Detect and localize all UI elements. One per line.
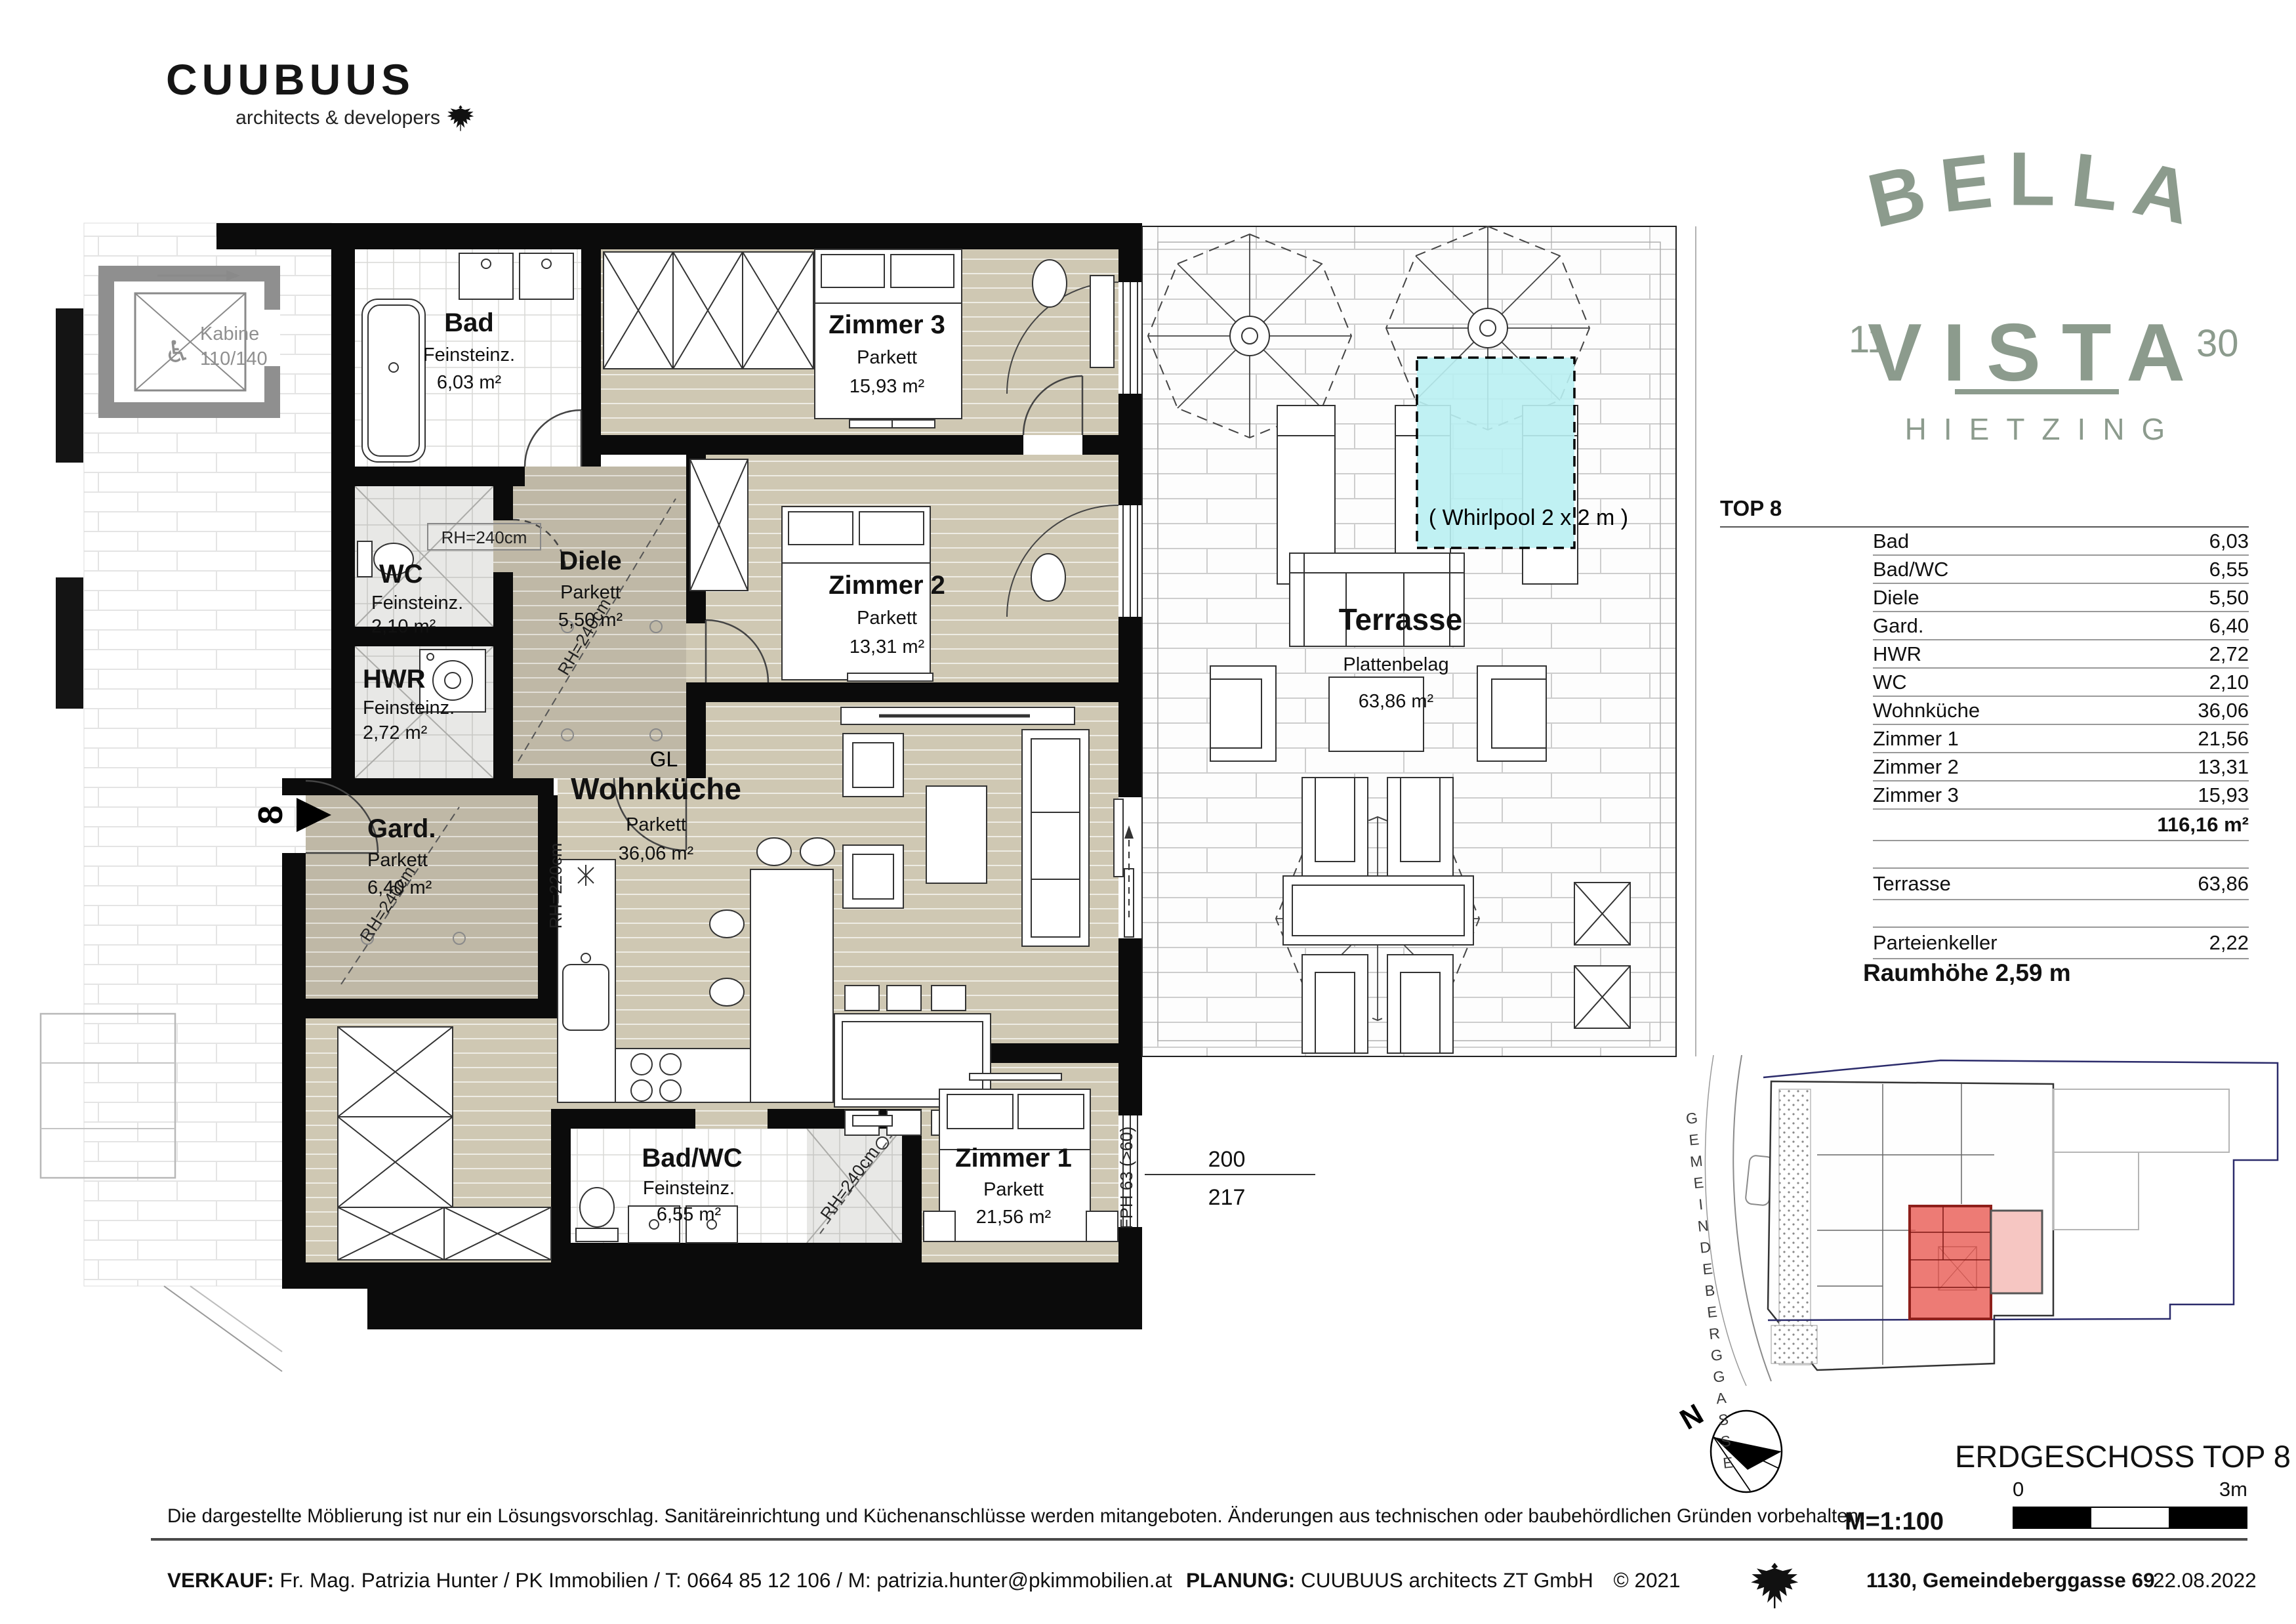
row-label: Zimmer 1: [1873, 727, 1959, 751]
page: { "brand": { "name": "CUUBUUS", "sub": "…: [0, 0, 2296, 1624]
logo-city: HIETZING: [1905, 412, 2183, 446]
logo-vista: VISTA: [1868, 308, 2206, 398]
row-label: Parteienkeller: [1873, 931, 1998, 955]
dim4-num: 200: [1208, 1147, 1246, 1172]
row-label: Zimmer 2: [1873, 755, 1959, 779]
fph-label: FPH 63 (>60): [1117, 1127, 1136, 1230]
sales-text: Fr. Mag. Patrizia Hunter / PK Immobilien…: [280, 1568, 1172, 1592]
eagle-icon: [447, 104, 474, 133]
row-label: HWR: [1873, 642, 1921, 666]
room-z2-floor: Parkett: [857, 608, 917, 629]
table-keller-row: Parteienkeller2,22: [1873, 927, 2249, 959]
row-label: Zimmer 3: [1873, 783, 1959, 807]
disclaimer-text: Die dargestellte Möblierung ist nur ein …: [167, 1505, 1864, 1528]
room-bad-name: Bad: [444, 308, 494, 337]
room-wk-name: Wohnküche: [571, 772, 741, 806]
room-z1-name: Zimmer 1: [955, 1144, 1072, 1173]
room-badwc-area: 6,55 m²: [657, 1204, 722, 1225]
highlighted-unit: [1910, 1206, 1991, 1319]
footer-eagle-icon: [1751, 1563, 1798, 1608]
logo-bella: BELLA: [1860, 136, 2213, 243]
room-z2-name: Zimmer 2: [829, 571, 945, 600]
row-value: 6,55: [2209, 558, 2249, 581]
row-value: 21,56: [2198, 727, 2249, 751]
wheelchair-icon: ♿: [164, 334, 191, 369]
cuubuus-logo: CUUBUUS architects & developers: [166, 58, 474, 133]
room-z2-area: 13,31 m²: [850, 636, 925, 657]
area-table: TOP 8 Bad6,03 Bad/WC6,55 Diele5,50 Gard.…: [1720, 496, 2249, 959]
footer-address: 1130, Gemeindeberggasse 69: [1866, 1568, 2155, 1593]
scale-bar: [2013, 1507, 2247, 1529]
table-terrasse-row: Terrasse63,86: [1873, 867, 2249, 900]
footer-planning: PLANUNG: CUUBUUS architects ZT GmbH © 20…: [1186, 1568, 1681, 1593]
room-wk-floor: Parkett: [626, 814, 686, 835]
room-z1-floor: Parkett: [983, 1179, 1044, 1200]
row-label: Gard.: [1873, 614, 1924, 638]
scale-labels: 0 3m: [2013, 1478, 2247, 1501]
cuubuus-wordmark: CUUBUUS: [166, 58, 474, 101]
kabine-size: 110/140: [200, 348, 268, 369]
table-row: Bad/WC6,55: [1873, 556, 2249, 584]
table-row: Diele5,50: [1873, 584, 2249, 612]
room-hwr-name: HWR: [363, 665, 426, 694]
room-z1-area: 21,56 m²: [976, 1207, 1052, 1228]
terrace-area: 63,86 m²: [1359, 691, 1434, 712]
room-diele-floor: Parkett: [560, 582, 621, 603]
room-hwr-floor: Feinsteinz.: [363, 697, 455, 718]
room-height-note: Raumhöhe 2,59 m: [1863, 959, 2071, 987]
row-value: 15,93: [2198, 783, 2249, 807]
kabine-label: Kabine: [200, 323, 259, 344]
footer-date: 22.08.2022: [2153, 1568, 2257, 1593]
terrace: ( Whirlpool 2 x 2 m ) Terrasse Plattenbe…: [1142, 226, 1696, 1056]
room-hwr-area: 2,72 m²: [363, 722, 428, 743]
row-value: 2,22: [2209, 931, 2249, 955]
row-label: Diele: [1873, 586, 1919, 610]
elevator: ♿ Kabine 110/140: [98, 266, 280, 418]
room-gard-area: 6,40 m²: [367, 877, 432, 898]
table-total-row: 116,16 m²: [1873, 810, 2249, 841]
table-row: Gard.6,40: [1873, 612, 2249, 640]
room-gard-floor: Parkett: [367, 850, 428, 871]
room-bad-area: 6,03 m²: [437, 372, 502, 393]
footer-sales: VERKAUF: Fr. Mag. Patrizia Hunter / PK I…: [167, 1568, 1172, 1593]
room-badwc-name: Bad/WC: [642, 1144, 742, 1173]
table-row: Wohnküche36,06: [1873, 697, 2249, 725]
room-badwc-floor: Feinsteinz.: [643, 1178, 735, 1199]
dim4-den: 217: [1208, 1185, 1246, 1210]
whirlpool-label: ( Whirlpool 2 x 2 m ): [1429, 505, 1628, 530]
sales-label: VERKAUF:: [167, 1568, 274, 1592]
cuubuus-subtitle: architects & developers: [236, 107, 440, 129]
scale-end: 3m: [2219, 1478, 2247, 1501]
logo-30: 30: [2196, 322, 2239, 365]
svg-text:BELLA: BELLA: [1860, 136, 2213, 243]
table-row: Zimmer 213,31: [1873, 753, 2249, 781]
room-diele-area: 5,50 m²: [558, 610, 623, 631]
room-z3-area: 15,93 m²: [850, 376, 925, 397]
room-bad-floor: Feinsteinz.: [423, 344, 515, 365]
table-row: Bad6,03: [1873, 528, 2249, 556]
rh220: RH=220cm: [546, 843, 565, 929]
floor-title: ERDGESCHOSS TOP 8: [1955, 1438, 2250, 1474]
row-value: 63,86: [2198, 872, 2249, 896]
row-label: Terrasse: [1873, 872, 1951, 896]
row-value: 2,10: [2209, 671, 2249, 694]
room-z3-floor: Parkett: [857, 347, 917, 368]
gl-label: GL: [650, 747, 678, 771]
terrace-floor: Plattenbelag: [1343, 654, 1448, 675]
table-row: Zimmer 315,93: [1873, 781, 2249, 810]
room-wc-name: WC: [379, 560, 423, 589]
row-label: Bad/WC: [1873, 558, 1948, 581]
row-value: 6,40: [2209, 614, 2249, 638]
table-row: WC2,10: [1873, 669, 2249, 697]
table-total: 116,16 m²: [2157, 813, 2249, 837]
scale-zero: 0: [2013, 1478, 2024, 1501]
logo-11: 11: [1849, 318, 1888, 361]
rh240-wc: RH=240cm: [441, 528, 527, 547]
room-wk-area: 36,06 m²: [619, 843, 694, 864]
bellavista-logo: BELLA VISTA 11 30 HIETZING: [1817, 108, 2257, 449]
row-label: WC: [1873, 671, 1907, 694]
room-diele-name: Diele: [559, 547, 622, 575]
room-wc-area: 2,10 m²: [371, 616, 436, 637]
footer-divider: [151, 1538, 2247, 1541]
planning-text: CUUBUUS architects ZT GmbH: [1301, 1568, 1593, 1592]
planning-label: PLANUNG:: [1186, 1568, 1295, 1592]
table-row: Zimmer 121,56: [1873, 725, 2249, 753]
room-gard-name: Gard.: [367, 814, 436, 843]
room-wc-floor: Feinsteinz.: [371, 593, 463, 614]
highlighted-terrace: [1991, 1211, 2042, 1293]
room-z3-name: Zimmer 3: [829, 310, 945, 339]
unit-number: 8: [252, 806, 290, 825]
copyright: © 2021: [1614, 1568, 1681, 1592]
row-value: 2,72: [2209, 642, 2249, 666]
row-label: Wohnküche: [1873, 699, 1980, 722]
site-plan: [1705, 1055, 2278, 1386]
table-title: TOP 8: [1720, 496, 2249, 521]
row-label: Bad: [1873, 530, 1909, 553]
row-value: 5,50: [2209, 586, 2249, 610]
row-value: 13,31: [2198, 755, 2249, 779]
logo-divider: [1955, 389, 2119, 394]
north-letter: N: [1675, 1398, 1709, 1436]
row-value: 6,03: [2209, 530, 2249, 553]
terrace-name: Terrasse: [1339, 602, 1462, 636]
row-value: 36,06: [2198, 699, 2249, 722]
table-row: HWR2,72: [1873, 640, 2249, 669]
